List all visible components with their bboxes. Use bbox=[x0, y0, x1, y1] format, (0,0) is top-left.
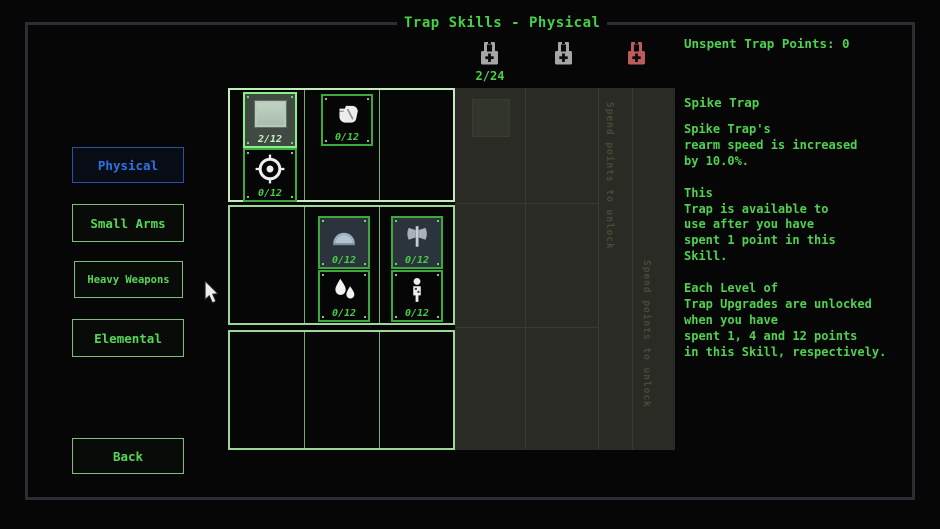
category-button-physical[interactable]: Physical bbox=[72, 147, 184, 183]
skill-points: 0/12 bbox=[405, 308, 429, 319]
skill-box-decoy-figure[interactable]: 0/12 bbox=[391, 270, 443, 322]
back-button[interactable]: Back bbox=[72, 438, 184, 474]
skill-box-spike-trap[interactable]: 2/12 bbox=[243, 92, 297, 148]
button-label: Physical bbox=[98, 158, 158, 173]
skill-tier-row-3 bbox=[228, 330, 455, 450]
spike-plate-icon bbox=[245, 94, 295, 134]
skill-points: 2/12 bbox=[258, 134, 282, 145]
tier-lock-1 bbox=[477, 40, 502, 71]
tier-progress: 2/24 bbox=[467, 69, 513, 83]
button-label: Elemental bbox=[94, 331, 162, 346]
button-label: Back bbox=[113, 449, 143, 464]
skill-description: Spike Trap's rearm speed is increased by… bbox=[684, 122, 922, 361]
button-label: Small Arms bbox=[90, 216, 165, 231]
skill-box-fist[interactable]: 0/12 bbox=[321, 94, 373, 146]
grid-line bbox=[456, 327, 598, 328]
skill-box-droplets[interactable]: 0/12 bbox=[318, 270, 370, 322]
category-button-elemental[interactable]: Elemental bbox=[72, 319, 184, 357]
dome-icon bbox=[320, 218, 368, 255]
category-button-heavy-weapons[interactable]: Heavy Weapons bbox=[74, 261, 183, 298]
locked-column-label: Spend points to unlock bbox=[641, 260, 652, 440]
locked-column-label: Spend points to unlock bbox=[604, 102, 615, 332]
grid-line bbox=[632, 88, 633, 450]
button-label: Heavy Weapons bbox=[87, 274, 169, 286]
skill-points: 0/12 bbox=[335, 132, 359, 143]
lock-icon bbox=[477, 40, 502, 67]
lock-icon bbox=[551, 40, 576, 67]
grid-line bbox=[598, 88, 599, 450]
tier-divider bbox=[379, 332, 380, 448]
category-button-small-arms[interactable]: Small Arms bbox=[72, 204, 184, 242]
skill-box-targeting[interactable]: 0/12 bbox=[243, 148, 297, 202]
grid-line bbox=[525, 88, 526, 450]
page-title: Trap Skills - Physical bbox=[397, 15, 607, 31]
tier-divider bbox=[304, 90, 305, 200]
locked-skill-slot bbox=[472, 99, 510, 137]
unspent-points-label: Unspent Trap Points: 0 bbox=[684, 36, 850, 51]
skill-points: 0/12 bbox=[332, 308, 356, 319]
skill-box-axe[interactable]: 0/12 bbox=[391, 216, 443, 269]
lock-icon-red bbox=[624, 40, 649, 67]
grid-line bbox=[456, 203, 598, 204]
figure-icon bbox=[393, 272, 441, 308]
mouse-cursor-icon bbox=[203, 281, 220, 308]
skill-points: 0/12 bbox=[332, 255, 356, 266]
skill-points: 0/12 bbox=[405, 255, 429, 266]
tier-lock-3 bbox=[624, 40, 649, 71]
crosshair-icon bbox=[245, 150, 295, 188]
axe-icon bbox=[393, 218, 441, 255]
tier-lock-2 bbox=[551, 40, 576, 71]
tier-divider bbox=[379, 90, 380, 200]
skill-box-dome[interactable]: 0/12 bbox=[318, 216, 370, 269]
trap-skills-screen: Trap Skills - Physical bbox=[0, 0, 940, 529]
droplets-icon bbox=[320, 272, 368, 308]
selected-skill-name: Spike Trap bbox=[684, 95, 759, 110]
fist-icon bbox=[323, 96, 371, 132]
tier-divider bbox=[304, 207, 305, 323]
tier-divider bbox=[304, 332, 305, 448]
tier-divider bbox=[379, 207, 380, 323]
skill-points: 0/12 bbox=[258, 188, 282, 199]
